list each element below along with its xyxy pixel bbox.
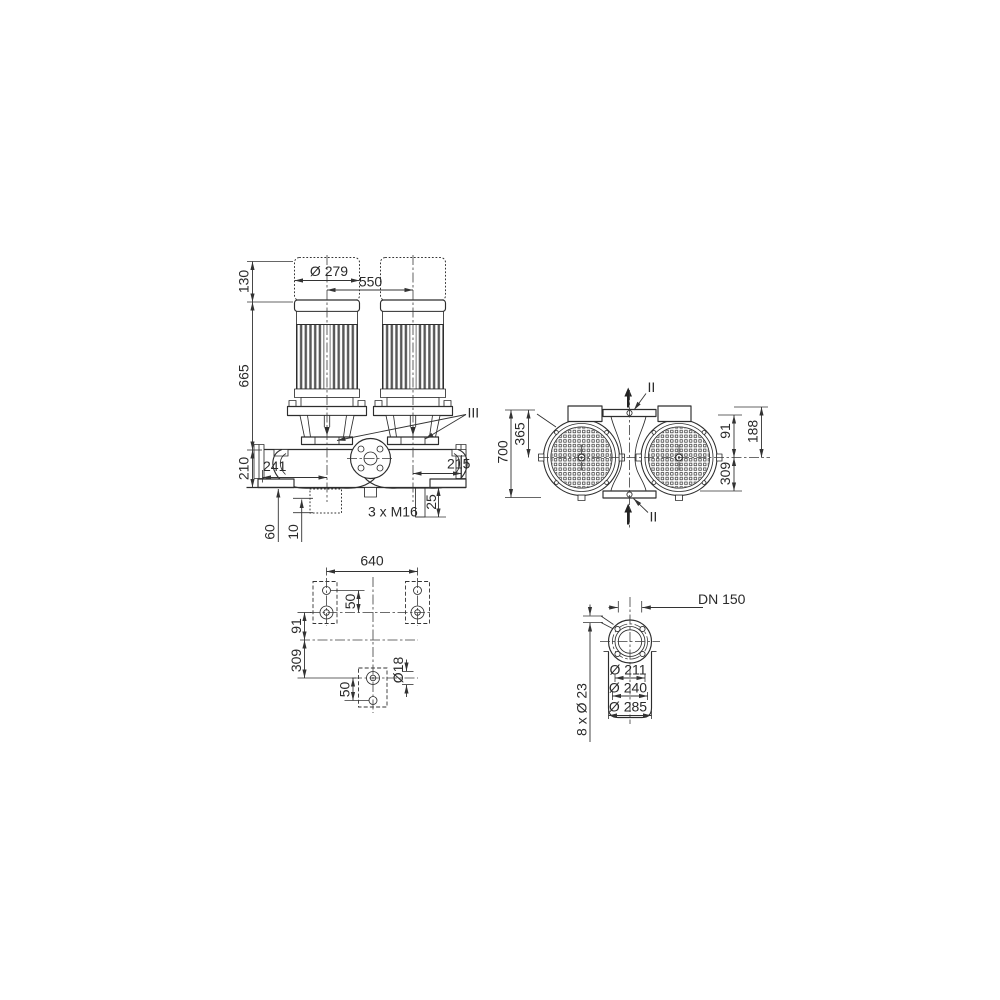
dim-25: 25 [416, 488, 447, 518]
foundation-dotted-outline [310, 489, 342, 513]
dim-91-side-label: 91 [717, 423, 733, 439]
pump-dimensional-drawing: 130 665 210 Ø 279 550 241 215 [0, 0, 1000, 1000]
dim-50-lower-label: 50 [337, 682, 353, 698]
front-view: 130 665 210 Ø 279 550 241 215 [236, 255, 480, 542]
dim-640-label: 640 [360, 553, 384, 569]
dim-550-label: 550 [359, 274, 383, 290]
pump-foot-right [430, 479, 466, 488]
plan-view: 640 50 91 309 50 Ø18 [288, 553, 432, 714]
flange-bolt-hole [615, 626, 620, 631]
dim-241-label: 241 [263, 458, 287, 474]
dim-50-lower: 50 [337, 678, 370, 701]
pump-dimensional-drawing-page: 130 665 210 Ø 279 550 241 215 [0, 0, 1000, 1000]
side-view: 700 365 91 309 188 II II [495, 379, 771, 528]
dim-240-label: Ø 240 [609, 680, 647, 696]
dim-210-label: 210 [236, 457, 252, 481]
housing-edge-line [537, 414, 556, 427]
dim-8x23-label: 8 x Ø 23 [574, 683, 590, 736]
dim-640: 640 [327, 553, 418, 576]
dim-188: 188 [734, 407, 768, 458]
dim-309-plan: 309 [288, 640, 356, 678]
dim-130: 130 [236, 262, 294, 303]
pipe-contour-right [635, 417, 646, 491]
flange-bolt-hole [640, 651, 645, 656]
dim-210: 210 [236, 450, 253, 488]
section-label-II-top: II [648, 379, 656, 395]
flow-arrow-bottom [624, 504, 632, 525]
terminal-box-right [658, 406, 691, 422]
section-marker-II-top: II [634, 379, 655, 410]
dim-665-label: 665 [236, 364, 252, 388]
flange-bolt-hole [615, 651, 620, 656]
dim-365-label: 365 [512, 422, 528, 446]
section-label-III: III [468, 405, 480, 421]
thread-callout-label: 3 x M16 [368, 504, 418, 520]
dim-130-label: 130 [236, 270, 252, 294]
dim-215-label: 215 [447, 456, 471, 472]
dim-91-plan: 91 [288, 613, 312, 641]
dim-665: 665 [236, 302, 263, 450]
dim-365: 365 [512, 410, 529, 458]
section-marker-II-bottom: II [634, 499, 658, 525]
dim-285: Ø 285 [609, 699, 652, 720]
drain-stub [365, 488, 377, 498]
flange-bolt-hole [640, 626, 645, 631]
dim-309-plan-label: 309 [288, 649, 304, 673]
section-label-II-bottom: II [650, 509, 658, 525]
dim-18-label: Ø18 [390, 657, 406, 684]
dim-hole-diameter: Ø18 [390, 657, 414, 697]
dim-240: Ø 240 [609, 680, 648, 701]
dim-motor-diameter: Ø 279 [295, 263, 360, 281]
dim-dn150-label: DN 150 [698, 591, 746, 607]
dim-25-label: 25 [423, 494, 439, 510]
dim-91-plan-label: 91 [288, 618, 304, 634]
dim-dn150: DN 150 [609, 591, 746, 613]
dim-309-side-label: 309 [717, 462, 733, 486]
dim-285-label: Ø 285 [609, 699, 647, 715]
dim-60-label: 60 [262, 524, 278, 540]
dim-279-label: Ø 279 [310, 263, 348, 279]
dim-10: 10 [285, 498, 313, 542]
dim-50-upper-label: 50 [342, 594, 358, 610]
dim-700-label: 700 [495, 440, 511, 464]
pump-foot-left [258, 479, 294, 488]
dim-211-label: Ø 211 [609, 662, 646, 678]
flange-view: DN 150 Ø 211 Ø 240 Ø 285 8 x Ø [574, 591, 746, 742]
dim-91-side: 91 [717, 415, 742, 458]
dim-60: 60 [262, 489, 279, 542]
dim-10-label: 10 [285, 524, 301, 540]
flow-arrow-top [624, 388, 632, 408]
dim-50-upper: 50 [331, 591, 365, 613]
dim-bolt-holes: 8 x Ø 23 [574, 605, 614, 743]
dim-188-label: 188 [745, 420, 761, 444]
terminal-box-left [568, 406, 602, 422]
